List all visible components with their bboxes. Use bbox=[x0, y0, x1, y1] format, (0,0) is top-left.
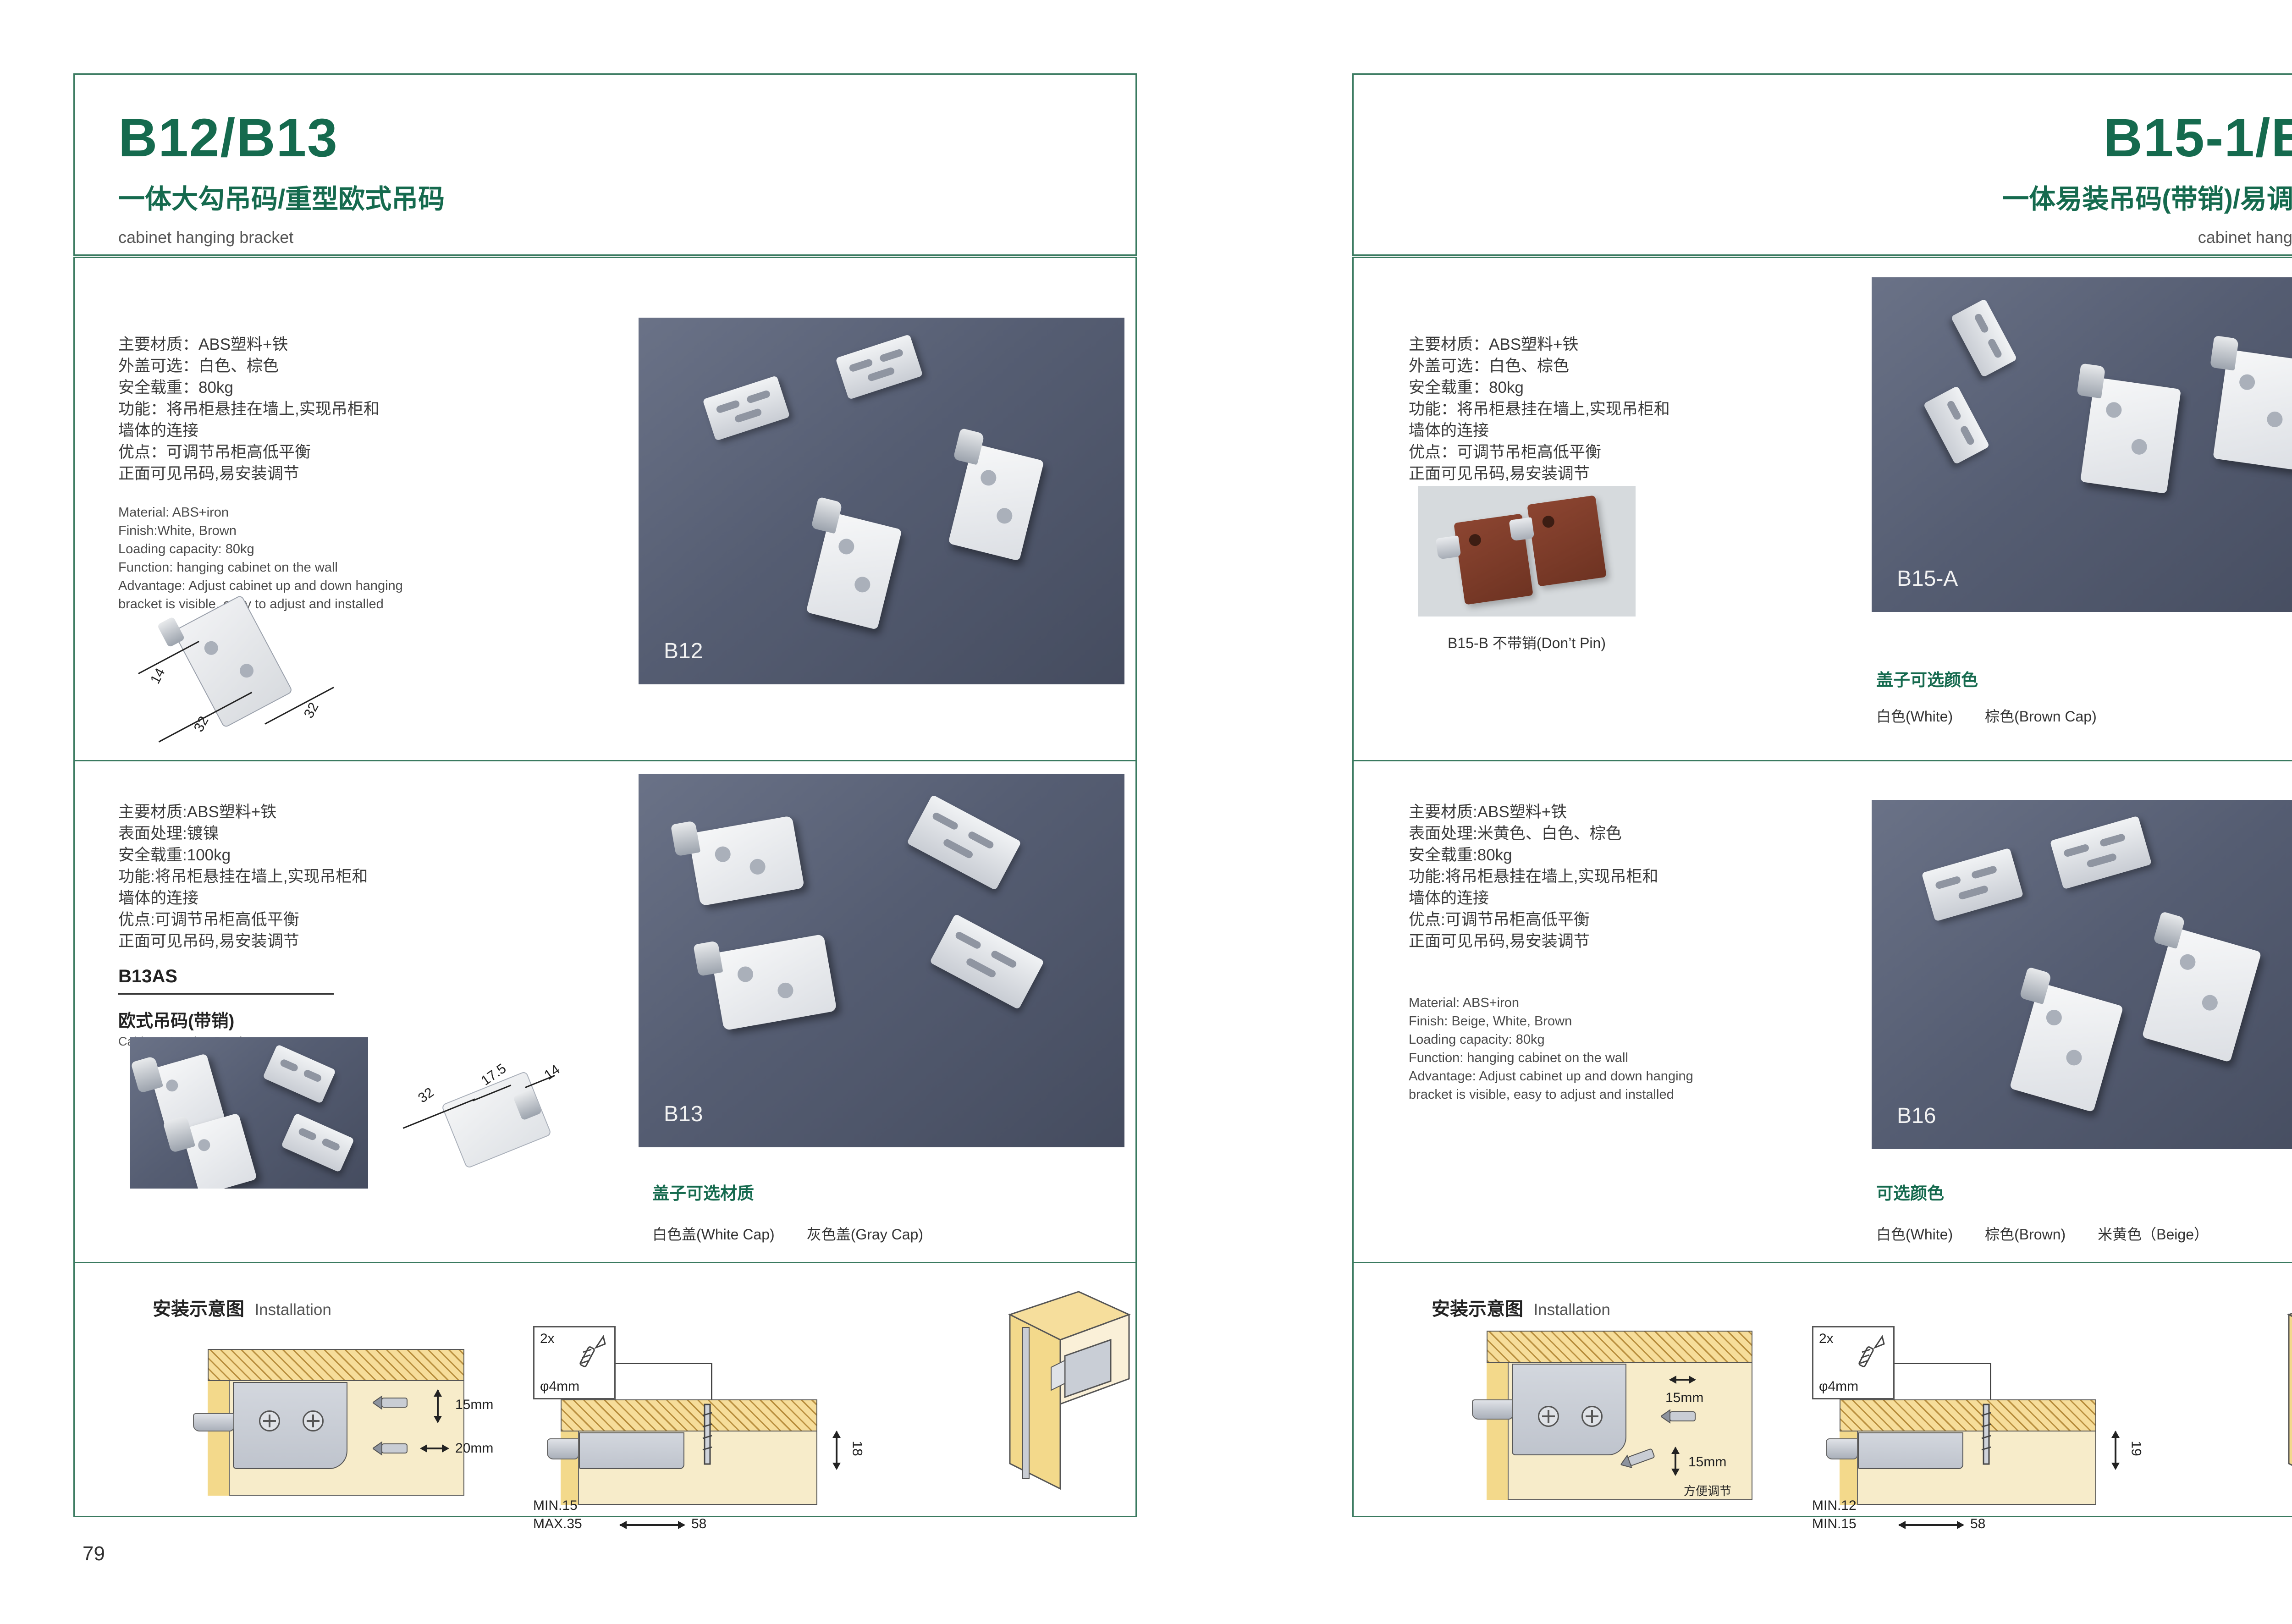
mounting-rail bbox=[1922, 848, 2024, 922]
text-line: Material: ABS+iron bbox=[118, 503, 403, 522]
screw-icon bbox=[576, 1334, 608, 1371]
text-line: 优点：可调节吊柜高低平衡 bbox=[1409, 441, 1670, 463]
page-subtitle: 一体大勾吊码/重型欧式吊码 bbox=[118, 177, 445, 216]
b13-parts-photo bbox=[130, 1037, 368, 1189]
text-line: 功能：将吊柜悬挂在墙上,实现吊柜和 bbox=[118, 398, 380, 420]
screw-icon bbox=[1855, 1334, 1887, 1371]
screw-callout: 2x φ4mm bbox=[533, 1326, 616, 1399]
text-line: 外盖可选：白色、棕色 bbox=[118, 355, 380, 377]
callout-qty: 2x bbox=[1819, 1331, 1834, 1347]
text-line: Finish:White, Brown bbox=[118, 522, 403, 540]
text-line: 安全载重：80kg bbox=[118, 377, 380, 398]
text-line: 墙体的连接 bbox=[118, 887, 368, 909]
model-underline bbox=[118, 993, 334, 995]
text-line: 墙体的连接 bbox=[118, 420, 380, 441]
dim-15mm-v: 15mm bbox=[1688, 1454, 1726, 1470]
cap-color-title: 盖子可选颜色 bbox=[1876, 666, 1978, 691]
text-line: 白色(White) bbox=[1876, 1223, 1953, 1244]
callout-diameter: φ4mm bbox=[540, 1379, 579, 1394]
text-line: 功能:将吊柜悬挂在墙上,实现吊柜和 bbox=[118, 866, 368, 887]
b16-specs-en: Material: ABS+ironFinish: Beige, White, … bbox=[1409, 994, 1693, 1104]
photo-label: B13 bbox=[664, 1101, 703, 1127]
text-line: 棕色(Brown) bbox=[1985, 1223, 2066, 1244]
hanging-bracket bbox=[688, 815, 804, 906]
mounting-rail bbox=[1950, 298, 2017, 377]
text-line: 安全载重:80kg bbox=[1409, 844, 1658, 866]
screw-icon bbox=[698, 1402, 716, 1470]
page-title: B15-1/B16 bbox=[1410, 107, 2292, 169]
text-line: 白色盖(White Cap) bbox=[652, 1223, 775, 1244]
dim-max: MAX.35 bbox=[533, 1516, 582, 1532]
b12-product-photo: B12 bbox=[639, 318, 1124, 684]
category-label: cabinet hanging bracket bbox=[118, 228, 445, 247]
text-line: Function: hanging cabinet on the wall bbox=[118, 558, 403, 577]
install-diagram-1: 15mm 15mm 方便调节 bbox=[1468, 1331, 1789, 1505]
text-line: 棕色(Brown Cap) bbox=[1985, 705, 2097, 726]
callout-qty: 2x bbox=[540, 1331, 555, 1347]
b13-model-block: B13AS 欧式吊码(带销) Cabinet Hanging Brcaket bbox=[118, 966, 334, 1049]
photo-label: B16 bbox=[1897, 1103, 1936, 1129]
cap-material-options: 白色盖(White Cap)灰色盖(Gray Cap) bbox=[652, 1223, 955, 1244]
b12-dimension-drawing: 14 32 32 bbox=[125, 579, 341, 749]
mounting-rail bbox=[1923, 385, 1989, 464]
mounting-rail bbox=[263, 1044, 336, 1104]
screwdriver-icon bbox=[373, 1438, 414, 1459]
text-line: Loading capacity: 80kg bbox=[118, 540, 403, 558]
mounting-rail bbox=[930, 914, 1045, 1009]
text-line: 表面处理:米黄色、白色、棕色 bbox=[1409, 823, 1658, 844]
dim-20mm: 20mm bbox=[455, 1441, 493, 1456]
hook-icon bbox=[547, 1438, 579, 1459]
hanging-bracket bbox=[2080, 377, 2181, 494]
b13-product-photo: B13 bbox=[639, 774, 1124, 1147]
installation-title-en: Installation bbox=[254, 1301, 331, 1319]
installation-header: 安装示意图 Installation bbox=[1432, 1294, 1610, 1321]
text-line: 优点:可调节吊柜高低平衡 bbox=[118, 909, 368, 930]
hanging-bracket bbox=[711, 934, 837, 1031]
text-line: 主要材质:ABS塑料+铁 bbox=[1409, 801, 1658, 823]
installation-header: 安装示意图 Installation bbox=[153, 1294, 331, 1321]
left-title-box: B12/B13 一体大勾吊码/重型欧式吊码 cabinet hanging br… bbox=[73, 73, 1137, 256]
dim-min1: MIN.12 bbox=[1812, 1498, 1857, 1514]
dim-18: 18 bbox=[849, 1441, 865, 1456]
screwdriver-icon bbox=[1661, 1406, 1702, 1426]
text-line: 正面可见吊码,易安装调节 bbox=[118, 930, 368, 952]
category-label: cabinet hanging bracket bbox=[1410, 228, 2292, 247]
install-diagram-2: 2x φ4mm 19 MIN.12 MIN.15 bbox=[1812, 1326, 2160, 1519]
text-line: 功能：将吊柜悬挂在墙上,实现吊柜和 bbox=[1409, 398, 1670, 420]
callout-diameter: φ4mm bbox=[1819, 1379, 1858, 1394]
text-line: 功能:将吊柜悬挂在墙上,实现吊柜和 bbox=[1409, 866, 1658, 887]
text-line: 米黄色（Beige） bbox=[2098, 1223, 2209, 1244]
hanging-bracket bbox=[948, 443, 1044, 561]
right-content-box: 主要材质：ABS塑料+铁外盖可选：白色、棕色安全载重：80kg功能：将吊柜悬挂在… bbox=[1352, 257, 2292, 1517]
dim-58: 58 bbox=[1970, 1516, 1985, 1532]
cap-color-options: 白色(White)棕色(Brown Cap) bbox=[1876, 705, 2129, 726]
text-line: 白色(White) bbox=[1876, 705, 1953, 726]
b16-specs-cn: 主要材质:ABS塑料+铁表面处理:米黄色、白色、棕色安全载重:80kg功能:将吊… bbox=[1409, 801, 1658, 952]
text-line: 优点:可调节吊柜高低平衡 bbox=[1409, 909, 1658, 930]
color-options: 白色(White)棕色(Brown)米黄色（Beige） bbox=[1876, 1223, 2241, 1244]
mounting-rail bbox=[281, 1113, 354, 1173]
b15-specs-cn: 主要材质：ABS塑料+铁外盖可选：白色、棕色安全载重：80kg功能：将吊柜悬挂在… bbox=[1409, 334, 1670, 484]
text-line: 安全载重：80kg bbox=[1409, 377, 1670, 398]
mounting-rail bbox=[907, 794, 1022, 890]
dim-58: 58 bbox=[691, 1516, 706, 1532]
text-line: bracket is visible, easy to adjust and i… bbox=[1409, 1085, 1693, 1104]
hanging-bracket bbox=[2142, 927, 2261, 1062]
b15b-product-photo bbox=[1418, 486, 1636, 617]
hook-icon bbox=[1472, 1399, 1513, 1420]
b16-product-photo: B16 bbox=[1872, 800, 2292, 1149]
text-line: 表面处理:镀镍 bbox=[118, 823, 368, 844]
text-line: 正面可见吊码,易安装调节 bbox=[1409, 930, 1658, 952]
photo-label: B12 bbox=[664, 639, 703, 664]
color-title: 可选颜色 bbox=[1876, 1179, 1944, 1204]
brown-bracket bbox=[1527, 495, 1607, 586]
hook-icon bbox=[1826, 1438, 1858, 1459]
text-line: 墙体的连接 bbox=[1409, 420, 1670, 441]
model-code: B13AS bbox=[118, 966, 334, 987]
text-line: 墙体的连接 bbox=[1409, 887, 1658, 909]
right-title-box: B15-1/B16 一体易装吊码(带销)/易调节吊码 cabinet hangi… bbox=[1352, 73, 2292, 256]
b12-specs-cn: 主要材质：ABS塑料+铁外盖可选：白色、棕色安全载重：80kg功能：将吊柜悬挂在… bbox=[118, 334, 380, 484]
dim-label: 32 bbox=[415, 1085, 437, 1107]
text-line: Finish: Beige, White, Brown bbox=[1409, 1012, 1693, 1030]
text-line: 主要材质:ABS塑料+铁 bbox=[118, 801, 368, 823]
installation-title-cn: 安装示意图 bbox=[153, 1294, 244, 1321]
section-divider bbox=[1354, 1262, 2292, 1263]
dim-label: 14 bbox=[148, 666, 169, 686]
text-line: Function: hanging cabinet on the wall bbox=[1409, 1049, 1693, 1067]
text-line: Advantage: Adjust cabinet up and down ha… bbox=[1409, 1067, 1693, 1085]
page-number-left: 79 bbox=[83, 1542, 105, 1565]
text-line: Loading capacity: 80kg bbox=[1409, 1030, 1693, 1049]
hook-icon bbox=[193, 1413, 234, 1431]
install-diagram-1: 15mm 20mm bbox=[189, 1349, 510, 1500]
text-line: 正面可见吊码,易安装调节 bbox=[1409, 463, 1670, 484]
hanging-bracket bbox=[2213, 349, 2292, 471]
installation-title-cn: 安装示意图 bbox=[1432, 1294, 1523, 1321]
hanging-bracket bbox=[806, 512, 902, 630]
installation-title-en: Installation bbox=[1533, 1301, 1610, 1319]
b15a-product-photo: B15-A bbox=[1872, 277, 2292, 612]
dim-15mm-h: 15mm bbox=[1665, 1390, 1703, 1406]
b13-dimension-drawing: 32 17.5 14 bbox=[391, 1053, 597, 1182]
screw-icon bbox=[1977, 1402, 1995, 1470]
b15b-caption: B15-B 不带销(Don’t Pin) bbox=[1418, 632, 1636, 653]
hanging-bracket bbox=[2010, 982, 2124, 1112]
text-line: 正面可见吊码,易安装调节 bbox=[118, 463, 380, 484]
text-line: 主要材质：ABS塑料+铁 bbox=[118, 334, 380, 355]
mounting-rail bbox=[702, 375, 790, 441]
cap-material-title: 盖子可选材质 bbox=[652, 1179, 754, 1204]
dim-min: MIN.15 bbox=[533, 1498, 578, 1514]
dim-19: 19 bbox=[2128, 1441, 2144, 1456]
text-line: 灰色盖(Gray Cap) bbox=[807, 1223, 923, 1244]
cabinet-3d-diagram bbox=[996, 1287, 1134, 1503]
page-subtitle: 一体易装吊码(带销)/易调节吊码 bbox=[1410, 177, 2292, 216]
section-divider bbox=[75, 1262, 1135, 1263]
page-title: B12/B13 bbox=[118, 107, 445, 169]
dim-label: 32 bbox=[191, 714, 212, 734]
mounting-rail bbox=[835, 334, 923, 400]
note-adjust: 方便调节 bbox=[1684, 1482, 1731, 1499]
text-line: 主要材质：ABS塑料+铁 bbox=[1409, 334, 1670, 355]
dim-min2: MIN.15 bbox=[1812, 1516, 1857, 1532]
section-divider bbox=[75, 760, 1135, 761]
b13-specs-cn: 主要材质:ABS塑料+铁表面处理:镀镍安全载重:100kg功能:将吊柜悬挂在墙上… bbox=[118, 801, 368, 952]
text-line: 外盖可选：白色、棕色 bbox=[1409, 355, 1670, 377]
text-line: 优点：可调节吊柜高低平衡 bbox=[118, 441, 380, 463]
screw-callout: 2x φ4mm bbox=[1812, 1326, 1895, 1399]
install-diagram-2: 2x φ4mm 18 MIN.15 MAX.35 bbox=[533, 1326, 882, 1519]
section-divider bbox=[1354, 760, 2292, 761]
model-name-cn: 欧式吊码(带销) bbox=[118, 1007, 334, 1032]
mounting-rail bbox=[2050, 816, 2152, 890]
text-line: 安全载重:100kg bbox=[118, 844, 368, 866]
photo-label: B15-A bbox=[1897, 566, 1958, 591]
screwdriver-icon bbox=[373, 1393, 414, 1413]
text-line: Material: ABS+iron bbox=[1409, 994, 1693, 1012]
left-content-box: 主要材质：ABS塑料+铁外盖可选：白色、棕色安全载重：80kg功能：将吊柜悬挂在… bbox=[73, 257, 1137, 1517]
cabinet-3d-diagram bbox=[2275, 1287, 2292, 1503]
dim-15mm: 15mm bbox=[455, 1397, 493, 1413]
